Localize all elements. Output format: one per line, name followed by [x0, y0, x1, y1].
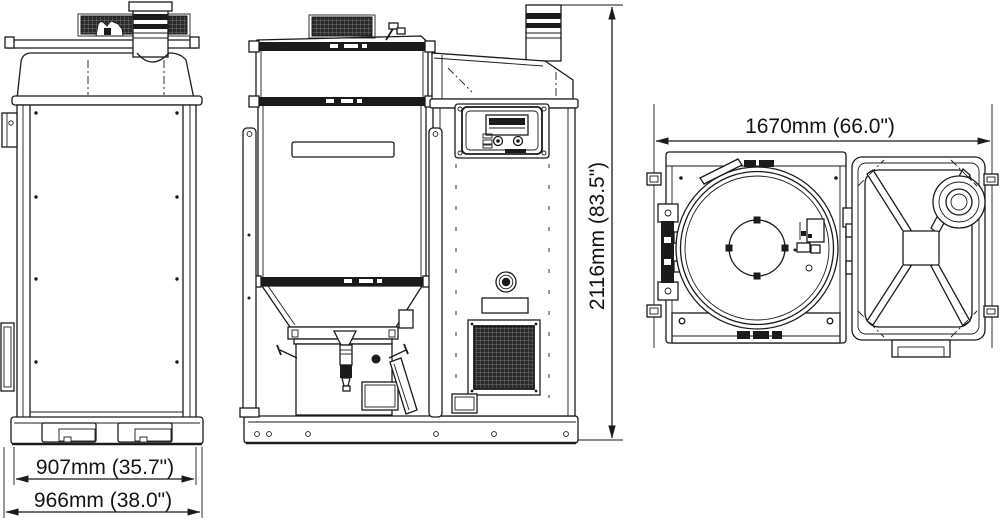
side-view-body	[1, 96, 202, 418]
front-base	[244, 416, 578, 443]
exhaust-pipe-side	[129, 2, 172, 57]
top-vent-grille	[312, 17, 372, 36]
door-center-boss	[903, 231, 939, 265]
exhaust-pipe-front	[526, 5, 561, 61]
access-panel	[362, 382, 398, 410]
side-lower-panel	[1, 323, 14, 391]
door-bottom-tab	[892, 340, 950, 357]
side-view: 907mm (35.7") 966mm (38.0")	[1, 2, 203, 518]
top-width-label: 1670mm (66.0")	[745, 115, 895, 138]
door-flange-port	[933, 176, 985, 228]
shell-main	[258, 105, 426, 278]
front-lower-box	[277, 331, 417, 415]
left-lever	[277, 345, 297, 358]
control-panel	[455, 104, 549, 158]
front-left-rail	[240, 128, 259, 417]
lid-rail	[6, 40, 198, 48]
outer-width-label: 966mm (38.0")	[34, 489, 172, 512]
side-view-top-assembly	[5, 2, 199, 99]
lid-latch-detail	[104, 28, 111, 35]
side-view-pallet-base	[11, 417, 203, 444]
top-clamp-segment	[744, 160, 756, 167]
clamp-band-1	[249, 41, 435, 52]
hopper-bracket	[399, 310, 413, 328]
top-open-door	[843, 157, 998, 357]
panel-nameplate	[505, 149, 526, 153]
front-cylinder	[249, 15, 435, 287]
front-cabinet	[430, 5, 578, 416]
front-center-rail	[429, 128, 442, 417]
lid-rail-right-hook	[190, 37, 199, 48]
cabinet-vent-grille	[474, 326, 534, 389]
body-shell	[17, 105, 196, 418]
height-label: 2116mm (83.5")	[586, 162, 609, 310]
side-view-width-dimensions: 907mm (35.7") 966mm (38.0")	[4, 447, 202, 518]
inner-width-label: 907mm (35.7")	[36, 456, 174, 479]
bottom-clamp-segment	[737, 331, 750, 339]
rail-foot	[240, 408, 259, 417]
lid-dome	[17, 53, 194, 99]
body-top-flange	[12, 96, 202, 105]
top-view: 1670mm (66.0")	[647, 104, 998, 357]
cabinet-vent	[468, 320, 540, 395]
emergency-stop-button	[496, 272, 516, 292]
dimension-drawing-canvas: 907mm (35.7") 966mm (38.0")	[0, 0, 1000, 528]
shell-upper	[256, 50, 428, 98]
door-edge-tabs	[984, 174, 998, 317]
dimension-drawing-page: 907mm (35.7") 966mm (38.0")	[0, 0, 1000, 528]
side-hinge-bracket	[2, 113, 17, 147]
port-plug	[372, 355, 381, 364]
front-view: 2116mm (83.5")	[240, 5, 623, 443]
lid-rail-left-hook	[5, 37, 14, 48]
top-machine-body	[647, 152, 846, 343]
clamp-band-2	[249, 96, 435, 107]
